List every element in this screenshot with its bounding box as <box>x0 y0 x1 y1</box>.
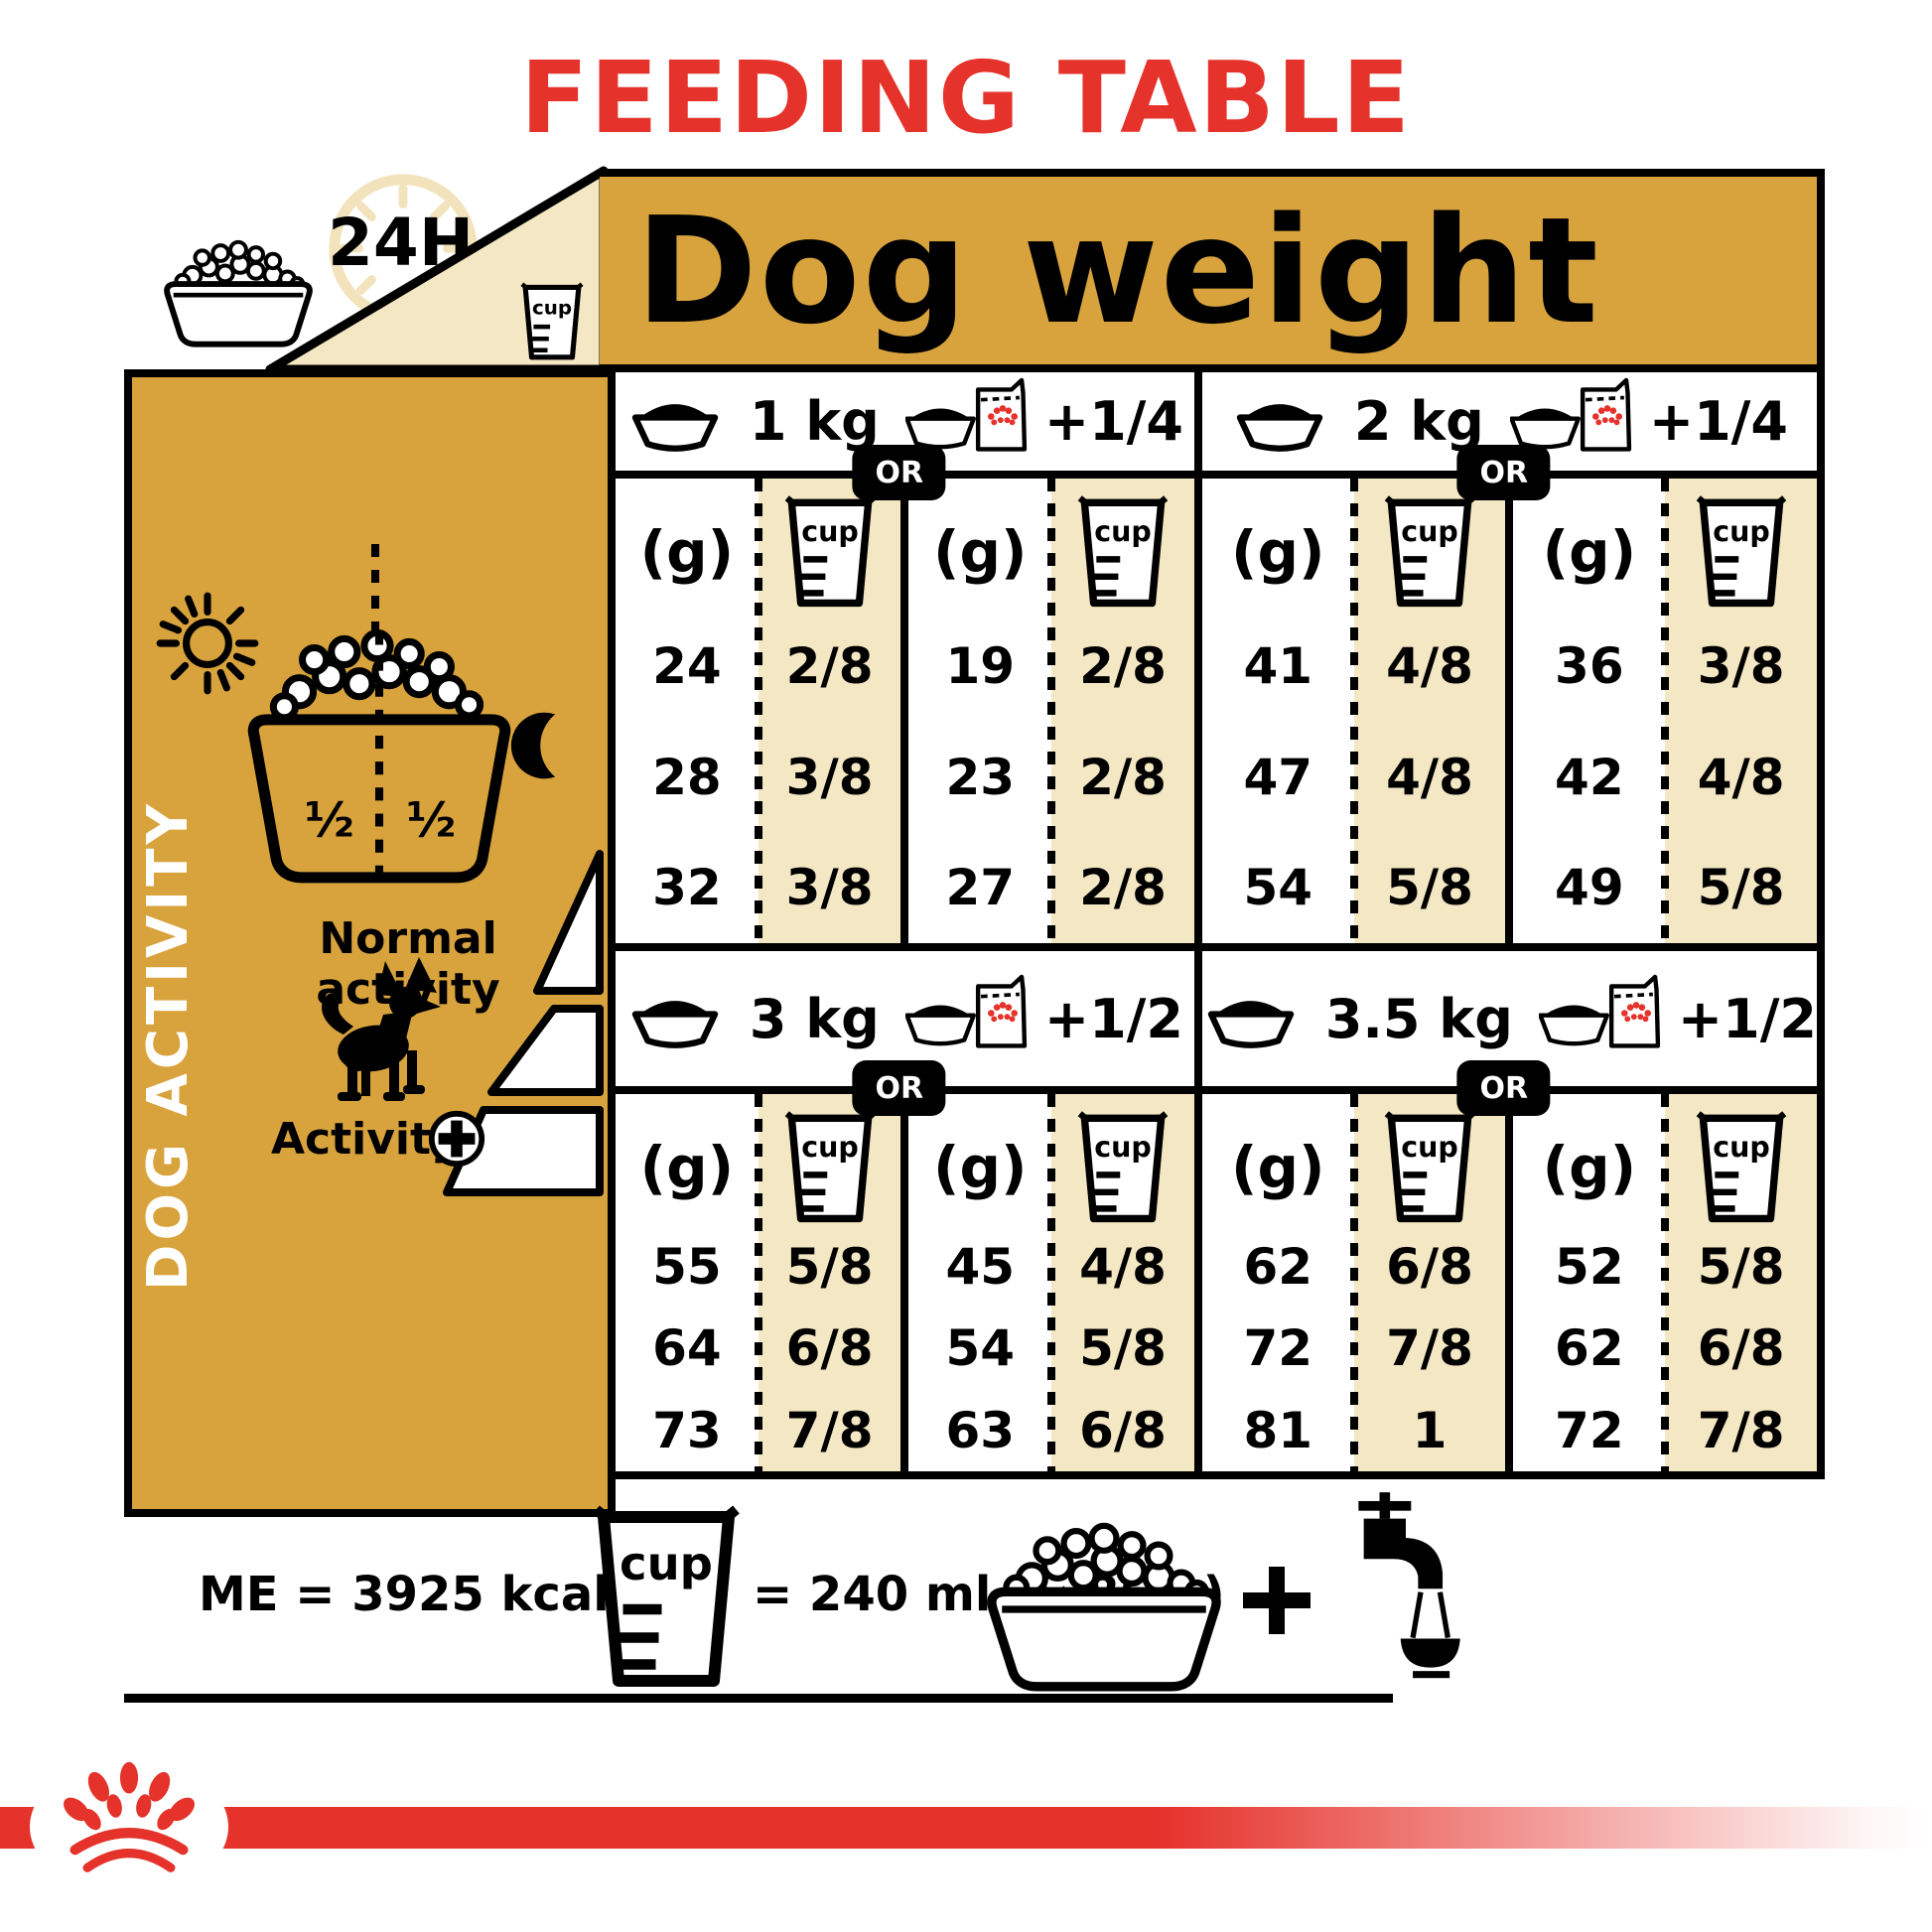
feed-value: 23 <box>908 722 1051 833</box>
measuring-cup-icon <box>1077 495 1169 609</box>
feeding-table-page: FEEDING TABLE 24H Dog weight DOG ACTIVIT… <box>0 0 1932 1932</box>
measuring-cup-icon <box>520 280 584 363</box>
dog-activity-vertical-label: DOG ACTIVITY <box>136 715 201 1291</box>
dry-cup-column: 6/8 7/8 1 <box>1354 1094 1506 1471</box>
feed-value: 2/8 <box>1051 832 1194 943</box>
cup-header <box>1051 1094 1194 1226</box>
measuring-cup-icon <box>1696 495 1787 609</box>
feed-value: 72 <box>1513 1390 1665 1471</box>
cup-header <box>1665 479 1817 611</box>
feed-value: 73 <box>616 1390 759 1471</box>
footer-divider-line <box>124 1694 1393 1703</box>
feed-value: 27 <box>908 832 1051 943</box>
feed-value: 36 <box>1513 611 1665 722</box>
dry-cup-column: 4/8 4/8 5/8 <box>1354 479 1506 943</box>
wet-add-label: +1/2 <box>1044 988 1183 1050</box>
quadrant-3kg-columns: (g) 55 64 73 5/8 6/8 7/8 (g) 45 54 63 <box>616 1094 1194 1471</box>
feed-value: 7/8 <box>759 1390 901 1471</box>
dry-bowl-icon <box>1231 389 1328 455</box>
quadrant-1kg-columns: (g) 24 28 32 2/8 3/8 3/8 (g) 19 23 27 <box>616 479 1194 943</box>
feed-value: 49 <box>1513 832 1665 943</box>
feed-value: 42 <box>1513 722 1665 833</box>
mix-grams-column: (g) 36 42 49 <box>1505 479 1665 943</box>
feed-value: 4/8 <box>1354 611 1506 722</box>
moon-icon <box>507 709 581 782</box>
feed-value: 5/8 <box>759 1226 901 1308</box>
grams-header: (g) <box>1202 1094 1354 1226</box>
wet-add-label: +1/4 <box>1649 390 1788 453</box>
feed-value: 64 <box>616 1308 759 1389</box>
measuring-cup-icon <box>1384 495 1475 609</box>
grams-header: (g) <box>616 1094 759 1226</box>
or-tab: OR <box>853 1060 946 1116</box>
measuring-cup-icon <box>784 1111 876 1224</box>
quadrant-2kg: 2 kg +1/4 OR (g) 41 47 54 4/8 4/8 5/8 <box>1202 372 1817 951</box>
quadrant-1kg-header: 1 kg +1/4 OR <box>616 372 1194 479</box>
quadrant-3-5kg: 3.5 kg +1/2 OR (g) 62 72 81 6/8 7/8 1 <box>1202 951 1817 1471</box>
feed-value: 6/8 <box>1354 1226 1506 1308</box>
royal-canin-crown-icon <box>62 1759 197 1886</box>
grams-header: (g) <box>616 479 759 611</box>
dry-bowl-icon <box>626 389 724 455</box>
dry-bowl-icon <box>1202 986 1300 1051</box>
dry-grams-column: (g) 62 72 81 <box>1202 1094 1354 1471</box>
half-right-label: ½ <box>406 793 456 849</box>
feed-value: 62 <box>1513 1308 1665 1389</box>
weight-label: 3 kg <box>750 988 880 1050</box>
quadrant-3kg-header: 3 kg +1/2 OR <box>616 951 1194 1094</box>
or-tab: OR <box>853 445 946 500</box>
feed-value: 24 <box>616 611 759 722</box>
feed-value: 81 <box>1202 1390 1354 1471</box>
wet-add-label: +1/2 <box>1678 988 1817 1050</box>
quadrant-2kg-columns: (g) 41 47 54 4/8 4/8 5/8 (g) 36 42 49 <box>1202 479 1817 943</box>
chihuahua-icon <box>296 955 455 1109</box>
feed-value: 3/8 <box>759 722 901 833</box>
quadrant-3-5kg-header: 3.5 kg +1/2 OR <box>1202 951 1817 1094</box>
mix-cup-column: 4/8 5/8 6/8 <box>1051 1094 1194 1471</box>
feed-value: 4/8 <box>1051 1226 1194 1308</box>
feed-value: 45 <box>908 1226 1051 1308</box>
wet-pouch-bowl-icon <box>1539 973 1666 1064</box>
plus-icon <box>1243 1567 1311 1634</box>
weight-label: 3.5 kg <box>1325 988 1513 1050</box>
mix-grams-column: (g) 19 23 27 <box>900 479 1051 943</box>
or-tab: OR <box>1457 1060 1551 1116</box>
quadrant-3kg: 3 kg +1/2 OR (g) 55 64 73 5/8 6/8 7/8 <box>616 951 1202 1471</box>
measuring-cup-icon <box>1696 1111 1787 1224</box>
feed-value: 2/8 <box>1051 611 1194 722</box>
dog-weight-banner: Dog weight <box>600 169 1825 372</box>
or-tab: OR <box>1457 445 1551 500</box>
feed-value: 5/8 <box>1051 1308 1194 1389</box>
feed-value: 32 <box>616 832 759 943</box>
measuring-cup-icon <box>1384 1111 1475 1224</box>
feed-value: 5/8 <box>1665 832 1817 943</box>
feed-value: 4/8 <box>1354 722 1506 833</box>
feed-value: 6/8 <box>759 1308 901 1389</box>
cup-header <box>1665 1094 1817 1226</box>
brand-red-band <box>0 1807 1932 1849</box>
feed-value: 5/8 <box>1354 832 1506 943</box>
dry-grams-column: (g) 55 64 73 <box>616 1094 759 1471</box>
mix-cup-column: 5/8 6/8 7/8 <box>1665 1094 1817 1471</box>
feed-value: 63 <box>908 1390 1051 1471</box>
mix-cup-column: 2/8 2/8 2/8 <box>1051 479 1194 943</box>
feed-value: 54 <box>1202 832 1354 943</box>
feed-value: 3/8 <box>1665 611 1817 722</box>
feed-value: 47 <box>1202 722 1354 833</box>
weight-label: 1 kg <box>750 390 880 453</box>
quadrant-2kg-header: 2 kg +1/4 OR <box>1202 372 1817 479</box>
measuring-cup-icon <box>784 495 876 609</box>
page-title: FEEDING TABLE <box>0 40 1932 156</box>
feed-value: 54 <box>908 1308 1051 1389</box>
activity-plus-icon <box>426 1108 487 1170</box>
dry-grams-column: (g) 41 47 54 <box>1202 479 1354 943</box>
dry-cup-column: 5/8 6/8 7/8 <box>759 1094 901 1471</box>
feed-value: 7/8 <box>1354 1308 1506 1389</box>
dry-bowl-icon <box>626 986 724 1051</box>
feed-value: 1 <box>1354 1390 1506 1471</box>
mix-grams-column: (g) 52 62 72 <box>1505 1094 1665 1471</box>
dog-weight-label: Dog weight <box>600 186 1600 356</box>
wet-add-label: +1/4 <box>1044 390 1183 453</box>
weight-label: 2 kg <box>1354 390 1484 453</box>
dry-grams-column: (g) 24 28 32 <box>616 479 759 943</box>
feed-value: 62 <box>1202 1226 1354 1308</box>
feed-value: 52 <box>1513 1226 1665 1308</box>
kibble-bowl-icon <box>975 1501 1233 1692</box>
feed-value: 5/8 <box>1665 1226 1817 1308</box>
feed-value: 55 <box>616 1226 759 1308</box>
quadrant-3-5kg-columns: (g) 62 72 81 6/8 7/8 1 (g) 52 62 72 <box>1202 1094 1817 1471</box>
dry-cup-column: 2/8 3/8 3/8 <box>759 479 901 943</box>
measuring-cup-icon <box>592 1505 741 1690</box>
feeding-table-body: 1 kg +1/4 OR (g) 24 28 32 2/8 3/8 3/8 <box>608 364 1825 1479</box>
dog-activity-sidebar: DOG ACTIVITY ½ ½ Normal activity Activit… <box>124 369 616 1517</box>
mix-cup-column: 3/8 4/8 5/8 <box>1665 479 1817 943</box>
feed-value: 41 <box>1202 611 1354 722</box>
water-tap-icon <box>1316 1481 1465 1692</box>
feed-value: 3/8 <box>759 832 901 943</box>
feed-value: 19 <box>908 611 1051 722</box>
feed-value: 2/8 <box>759 611 901 722</box>
feed-value: 72 <box>1202 1308 1354 1389</box>
measuring-cup-icon <box>1077 1111 1169 1224</box>
feed-value: 2/8 <box>1051 722 1194 833</box>
quadrant-1kg: 1 kg +1/4 OR (g) 24 28 32 2/8 3/8 3/8 <box>616 372 1202 951</box>
mix-grams-column: (g) 45 54 63 <box>900 1094 1051 1471</box>
half-left-label: ½ <box>305 793 354 849</box>
feed-value: 6/8 <box>1051 1390 1194 1471</box>
feed-value: 28 <box>616 722 759 833</box>
feed-value: 7/8 <box>1665 1390 1817 1471</box>
feed-value: 6/8 <box>1665 1308 1817 1389</box>
wet-pouch-bowl-icon <box>905 973 1033 1064</box>
grams-header: (g) <box>1202 479 1354 611</box>
feed-value: 4/8 <box>1665 722 1817 833</box>
cup-header <box>1051 479 1194 611</box>
